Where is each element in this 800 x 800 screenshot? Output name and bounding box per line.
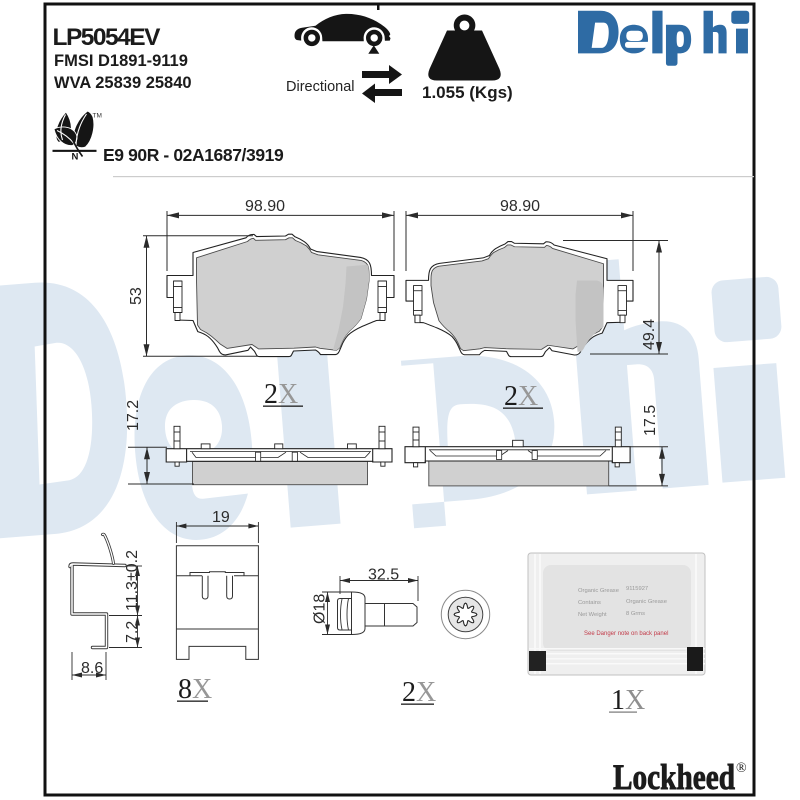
svg-text:Contains: Contains	[578, 600, 601, 606]
svg-text:8 Grms: 8 Grms	[626, 611, 645, 617]
svg-text:17.5: 17.5	[642, 405, 659, 436]
svg-text:19: 19	[212, 509, 230, 526]
svg-text:See Danger note on back panel: See Danger note on back panel	[584, 631, 668, 637]
svg-text:FMSI D1891-9119: FMSI D1891-9119	[54, 52, 188, 70]
svg-text:Directional: Directional	[286, 79, 355, 95]
svg-text:Net Weight: Net Weight	[578, 612, 607, 618]
svg-text:49.4: 49.4	[641, 319, 658, 350]
svg-text:8X: 8X	[178, 674, 212, 705]
svg-text:11.3±0.2: 11.3±0.2	[124, 550, 141, 611]
svg-text:9115927: 9115927	[626, 586, 648, 592]
svg-text:1X: 1X	[611, 685, 645, 716]
svg-text:TM: TM	[93, 113, 102, 120]
svg-text:E9 90R - 02A1687/3919: E9 90R - 02A1687/3919	[103, 145, 284, 165]
svg-text:®: ®	[736, 761, 747, 776]
svg-text:2X: 2X	[504, 381, 538, 412]
svg-text:98.90: 98.90	[245, 198, 285, 215]
svg-text:Organic Grease: Organic Grease	[626, 599, 667, 605]
svg-text:N: N	[72, 152, 79, 163]
svg-text:98.90: 98.90	[500, 198, 540, 215]
svg-text:LP5054EV: LP5054EV	[53, 24, 162, 51]
svg-text:2X: 2X	[264, 379, 298, 410]
svg-text:2X: 2X	[402, 677, 436, 708]
svg-text:1.055 (Kgs): 1.055 (Kgs)	[422, 83, 513, 102]
svg-text:Organic Grease: Organic Grease	[578, 588, 619, 594]
svg-text:Lockheed: Lockheed	[613, 757, 735, 797]
svg-text:17.2: 17.2	[125, 400, 142, 431]
svg-text:WVA 25839 25840: WVA 25839 25840	[54, 74, 192, 92]
svg-text:53: 53	[128, 287, 145, 305]
